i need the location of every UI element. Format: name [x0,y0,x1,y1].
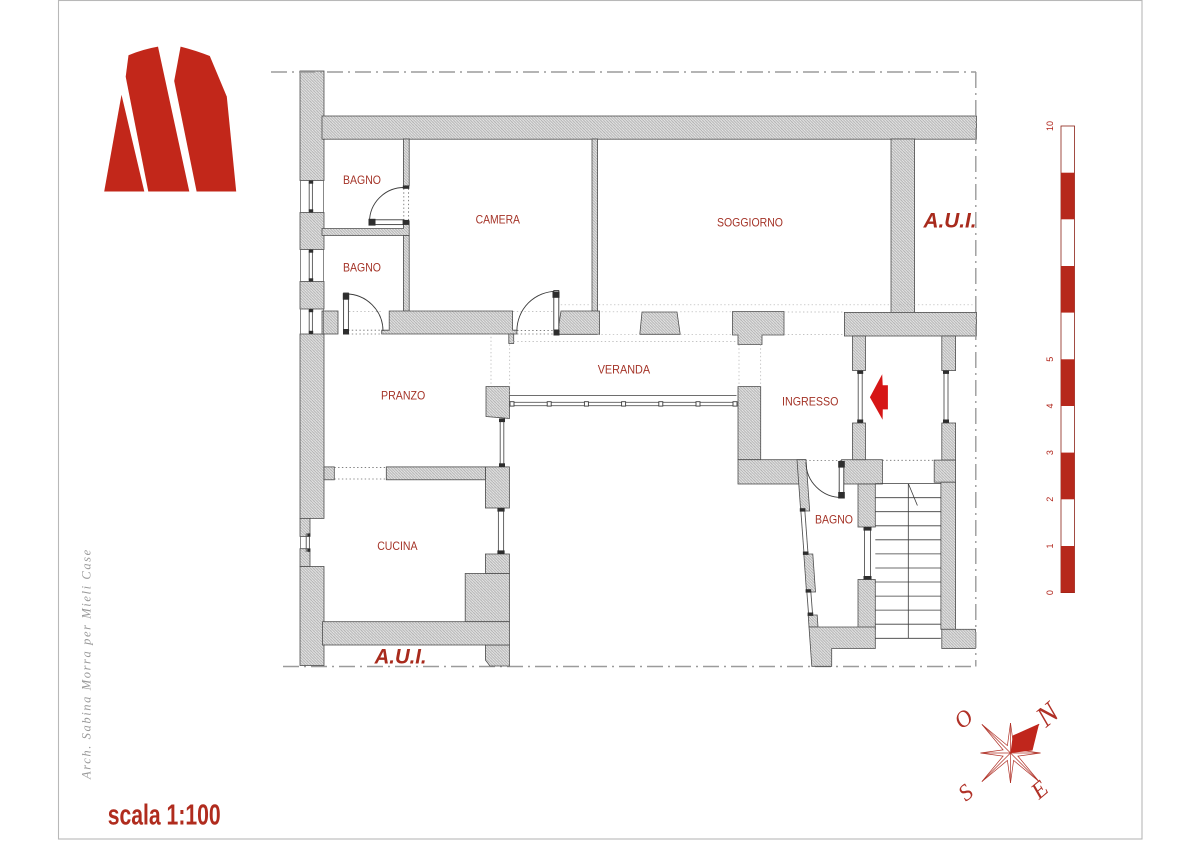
svg-text:S: S [953,779,978,806]
svg-text:CAMERA: CAMERA [476,212,521,226]
svg-text:scala 1:100: scala 1:100 [108,800,221,832]
svg-text:PRANZO: PRANZO [381,388,425,402]
svg-text:0: 0 [1045,590,1055,595]
svg-text:4: 4 [1045,403,1055,408]
svg-text:Arch. Sabina Morra per Mieli C: Arch. Sabina Morra per Mieli Case [80,548,94,780]
svg-text:O: O [949,704,978,734]
svg-text:5: 5 [1045,357,1055,362]
svg-text:10: 10 [1045,121,1055,131]
svg-text:VERANDA: VERANDA [598,363,651,377]
svg-text:A.U.I.: A.U.I. [923,209,977,233]
svg-text:A.U.I.: A.U.I. [374,645,427,669]
svg-text:SOGGIORNO: SOGGIORNO [717,215,783,229]
svg-text:1: 1 [1045,543,1055,548]
svg-text:3: 3 [1045,450,1055,455]
svg-text:2: 2 [1045,497,1055,502]
svg-text:BAGNO: BAGNO [343,173,381,187]
svg-text:BAGNO: BAGNO [815,513,853,527]
svg-text:BAGNO: BAGNO [343,261,381,275]
svg-text:CUCINA: CUCINA [377,539,418,553]
svg-text:INGRESSO: INGRESSO [782,394,839,408]
svg-text:E: E [1025,776,1053,805]
